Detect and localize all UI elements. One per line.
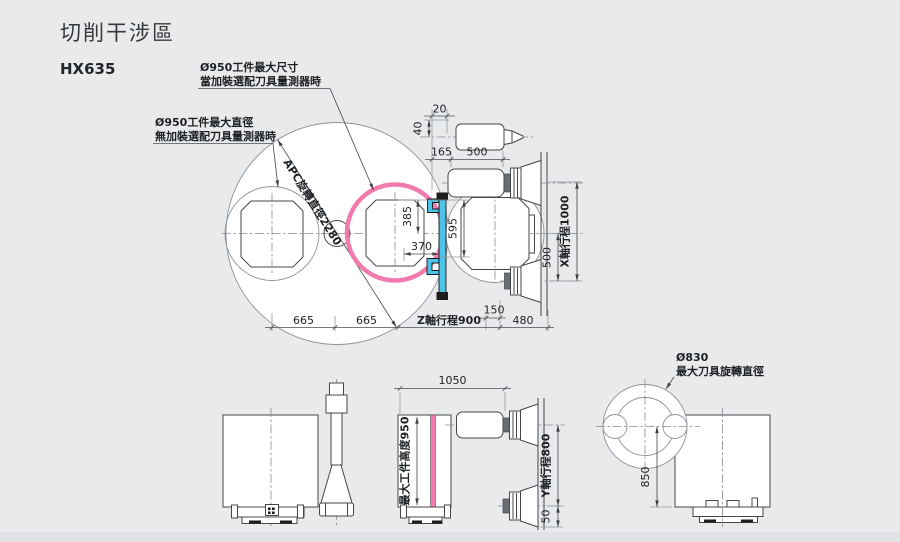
tool-diameter-note-line1: Ø830	[676, 351, 709, 364]
spindle-housing	[521, 161, 541, 206]
page-title: 切削干涉區	[60, 21, 175, 45]
spindle-nose	[503, 499, 510, 513]
clamp-bolt	[268, 512, 271, 515]
dim-500-top-label: 500	[467, 146, 488, 159]
note-without-probe-line2: 無加裝選配刀具量測器時	[155, 129, 276, 143]
spindle-flange	[510, 411, 521, 439]
body-detail	[727, 501, 739, 508]
dim-385-label: 385	[401, 206, 414, 227]
spindle-housing	[521, 485, 539, 527]
base-tab	[232, 505, 238, 518]
spindle-flange	[511, 267, 522, 295]
spindle-housing	[521, 260, 541, 303]
spindle-nose	[505, 273, 511, 289]
probe-head-bottom	[437, 292, 449, 300]
dim-y-travel-label: Y軸行程800	[539, 433, 553, 498]
clamp-bolt	[268, 508, 271, 511]
note-with-probe-line1: Ø950工件最大尺寸	[200, 60, 298, 74]
dim-665-b-label: 665	[356, 314, 377, 327]
note-leader	[666, 377, 674, 389]
spindle-flange	[510, 492, 521, 520]
spindle-body	[457, 412, 504, 438]
probe-head-top	[437, 193, 449, 201]
top-view: APC旋轉直徑2280	[153, 60, 583, 345]
model-label: HX635	[60, 60, 115, 78]
note-with-probe-line2: 當加裝選配刀具量測器時	[200, 74, 321, 88]
dim-595-label: 595	[447, 218, 460, 239]
side-view: 850 Ø830 最大刀具旋轉直徑	[596, 351, 770, 527]
base-foot	[704, 520, 716, 523]
base-foot	[741, 520, 753, 523]
dim-150-label: 150	[484, 304, 505, 317]
base-tab	[298, 505, 304, 518]
clamp-bolt	[272, 512, 275, 515]
dim-480-label: 480	[513, 314, 534, 327]
spindle-nose	[503, 418, 510, 432]
vertical-tool	[320, 379, 354, 527]
machine-base	[693, 507, 763, 517]
base-foot	[432, 521, 442, 524]
dim-1050-label: 1050	[439, 374, 467, 387]
tool-top	[330, 383, 344, 395]
dim-50-label: 50	[540, 510, 553, 524]
probe-arm	[439, 196, 446, 293]
front-view: 最大工件高度950 1050	[223, 374, 565, 530]
dim-20-label: 20	[433, 103, 447, 116]
base-foot	[249, 521, 261, 524]
base-foot	[280, 521, 292, 524]
workpiece-height-highlight	[431, 415, 436, 507]
tool-taper	[321, 465, 352, 503]
base-tab	[401, 505, 407, 518]
note-without-probe-line1: Ø950工件最大直徑	[155, 115, 253, 129]
footer-strip	[0, 532, 900, 542]
dim-workpiece-height-label: 最大工件高度950	[398, 416, 412, 505]
tool-block	[326, 395, 347, 413]
table-clamp-side	[529, 215, 535, 253]
interference-diagram: APC旋轉直徑2280	[0, 0, 900, 542]
tool-tip-cone	[504, 130, 523, 145]
base-tab	[445, 505, 451, 518]
pallet-station-left	[223, 415, 318, 507]
catalog-page: APC旋轉直徑2280	[0, 0, 900, 542]
dim-z-travel-label: Z軸行程900	[417, 313, 481, 327]
base-foot	[412, 521, 422, 524]
dim-40-label: 40	[412, 122, 425, 136]
tool-base	[320, 503, 354, 516]
dim-165-label: 165	[431, 146, 452, 159]
dim-665-a-label: 665	[293, 314, 314, 327]
dim-370-label: 370	[411, 240, 432, 253]
spindle-nose	[504, 174, 511, 192]
dim-x-travel-label: X軸行程1000	[558, 195, 572, 267]
spindle-flange	[511, 168, 522, 198]
spindle-body	[448, 169, 504, 197]
tool-shaft	[331, 413, 342, 465]
dim-500-x-label: 500	[541, 247, 554, 268]
clamp-bolt	[272, 508, 275, 511]
tool-diameter-note-line2: 最大刀具旋轉直徑	[676, 364, 764, 378]
pallet-base	[403, 507, 447, 517]
body-detail	[706, 501, 718, 508]
dim-850-label: 850	[639, 467, 652, 488]
spindle-housing	[521, 404, 539, 446]
